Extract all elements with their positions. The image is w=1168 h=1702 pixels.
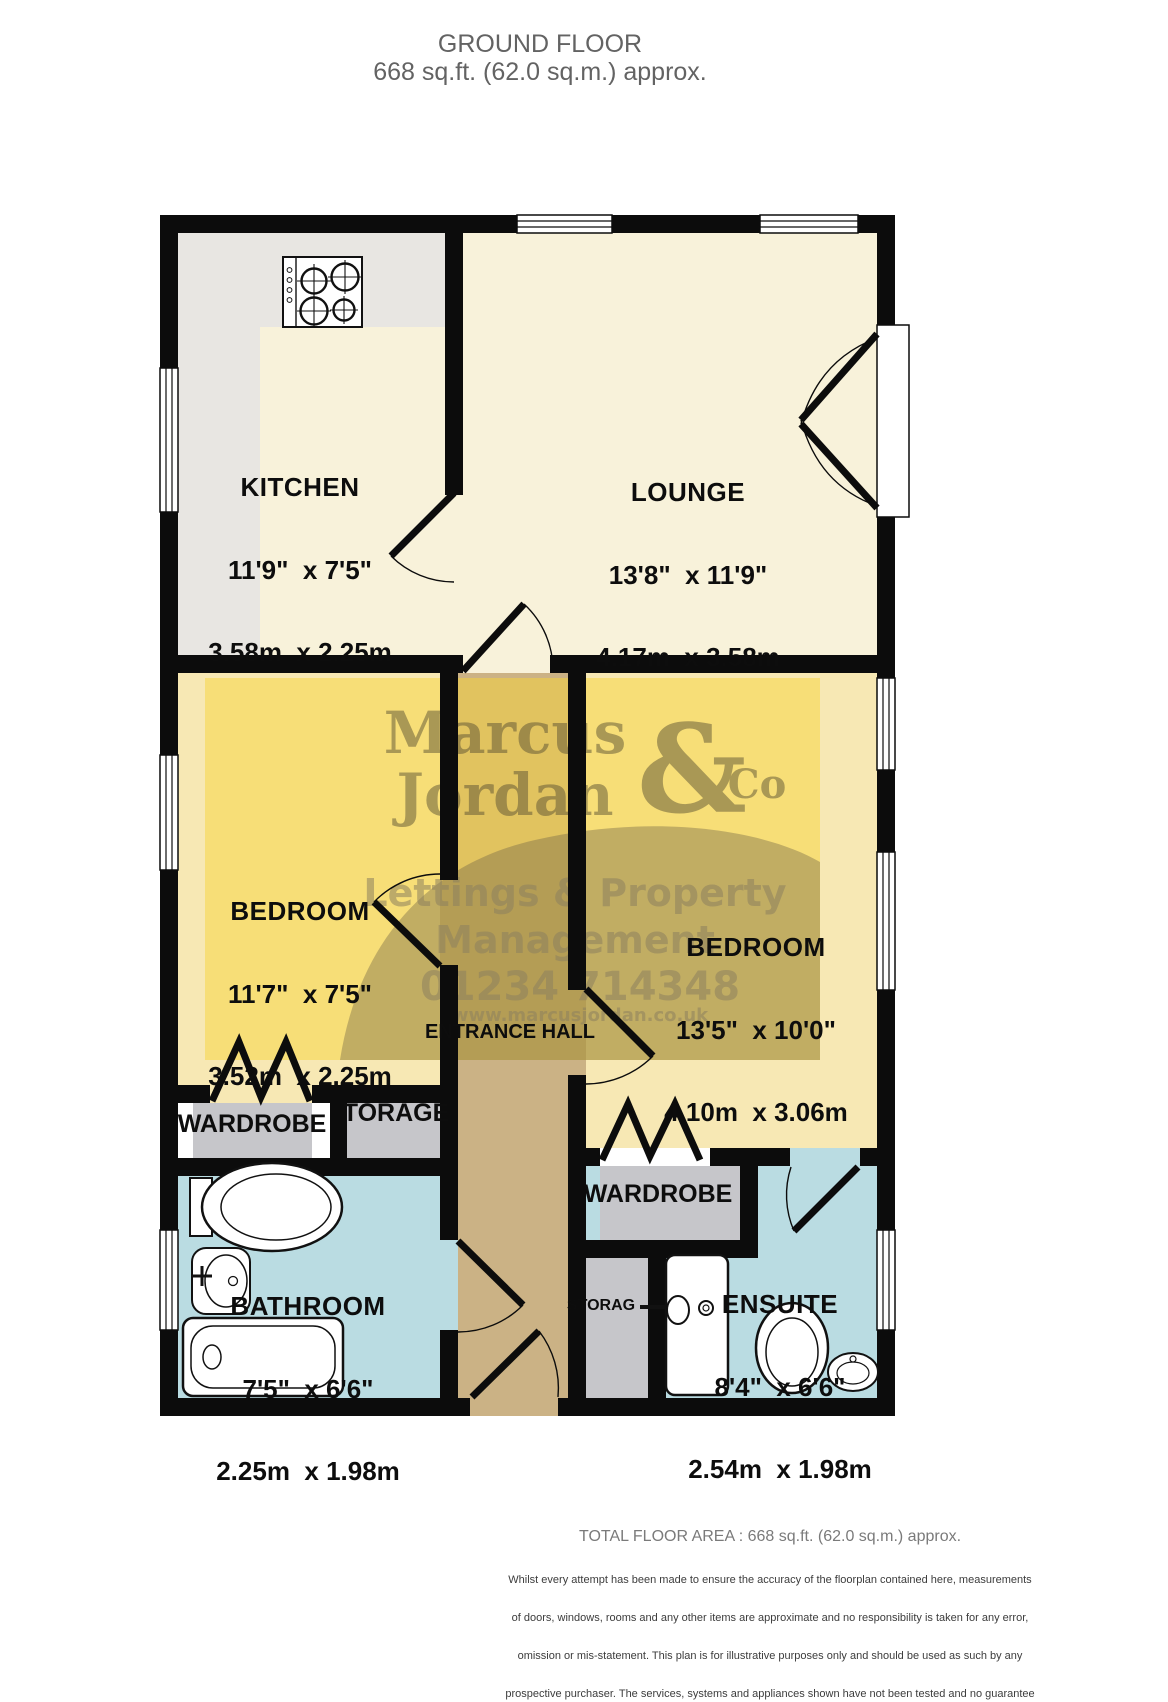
window-kitchen [160, 368, 178, 512]
window-top-1 [517, 215, 612, 233]
bedroom2-label: BEDROOM 13'5" x 10'0" 4.10m x 3.06m [664, 879, 848, 1182]
window-bedroom1 [160, 755, 178, 870]
window-ensuite [877, 1230, 895, 1330]
storage2-label: STORAG [567, 1298, 635, 1315]
entrance-hall-label: ENTRANCE HALL [425, 1022, 595, 1043]
window-top-2 [760, 215, 858, 233]
window-bathroom [160, 1230, 178, 1330]
window-bedroom2-lower [877, 852, 895, 990]
storage2-box [586, 1258, 648, 1398]
kitchen-label: KITCHEN 11'9" x 7'5" 3.58m x 2.25m [208, 419, 392, 722]
bathroom-label: BATHROOM 7'5" x 6'6" 2.25m x 1.98m [216, 1238, 400, 1541]
storage1-label: TORAGE [343, 1100, 450, 1127]
floorplan-drawing: Marcus Jordan & Co Lettings & Property M… [0, 0, 1168, 1702]
floorplan-page: GROUND FLOOR 668 sq.ft. (62.0 sq.m.) app… [0, 0, 1168, 1702]
wardrobe2-label: WARDROBE [584, 1181, 733, 1208]
window-bedroom2-upper [877, 678, 895, 770]
watermark-co: Co [728, 761, 787, 808]
wardrobe1-label: WARDROBE [178, 1111, 327, 1138]
hob-icon [283, 257, 362, 328]
ensuite-label: ENSUITE 8'4" x 6'6" 2.54m x 1.98m [688, 1236, 872, 1539]
watermark-name-line1: Marcus [384, 699, 626, 767]
lounge-label: LOUNGE 13'8" x 11'9" 4.17m x 3.58m [596, 424, 780, 727]
french-door-recess [877, 325, 909, 517]
